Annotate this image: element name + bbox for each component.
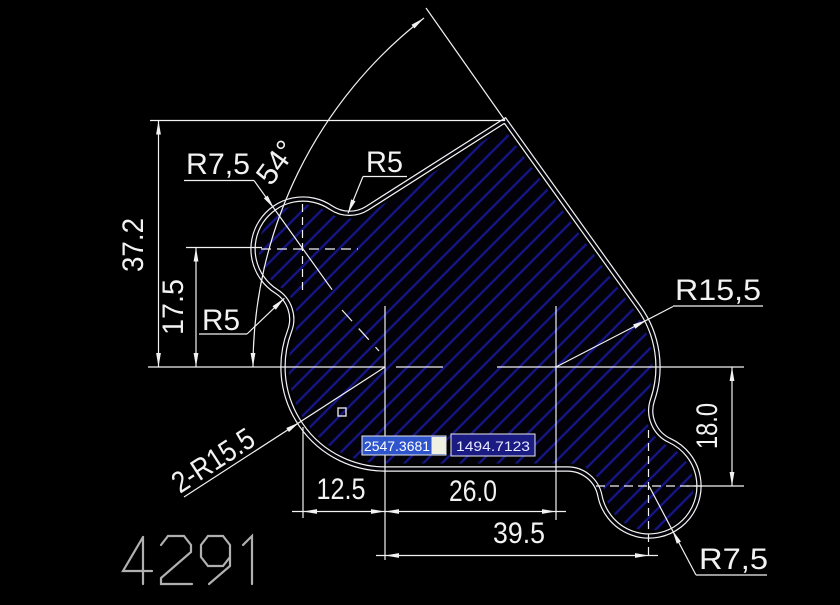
svg-text:26.0: 26.0: [449, 475, 497, 508]
svg-text:R7,5: R7,5: [699, 543, 768, 576]
svg-text:2547.3681: 2547.3681: [364, 439, 430, 454]
svg-text:39.5: 39.5: [493, 517, 545, 550]
svg-text:R15,5: R15,5: [675, 274, 761, 307]
svg-text:R7,5: R7,5: [186, 148, 250, 181]
svg-text:12.5: 12.5: [317, 473, 366, 506]
svg-text:1494.7123: 1494.7123: [456, 439, 530, 454]
svg-text:18.0: 18.0: [691, 403, 724, 449]
svg-text:17.5: 17.5: [157, 279, 190, 335]
svg-text:37.2: 37.2: [117, 218, 150, 272]
svg-text:R5: R5: [202, 304, 240, 337]
svg-text:R5: R5: [366, 146, 403, 179]
